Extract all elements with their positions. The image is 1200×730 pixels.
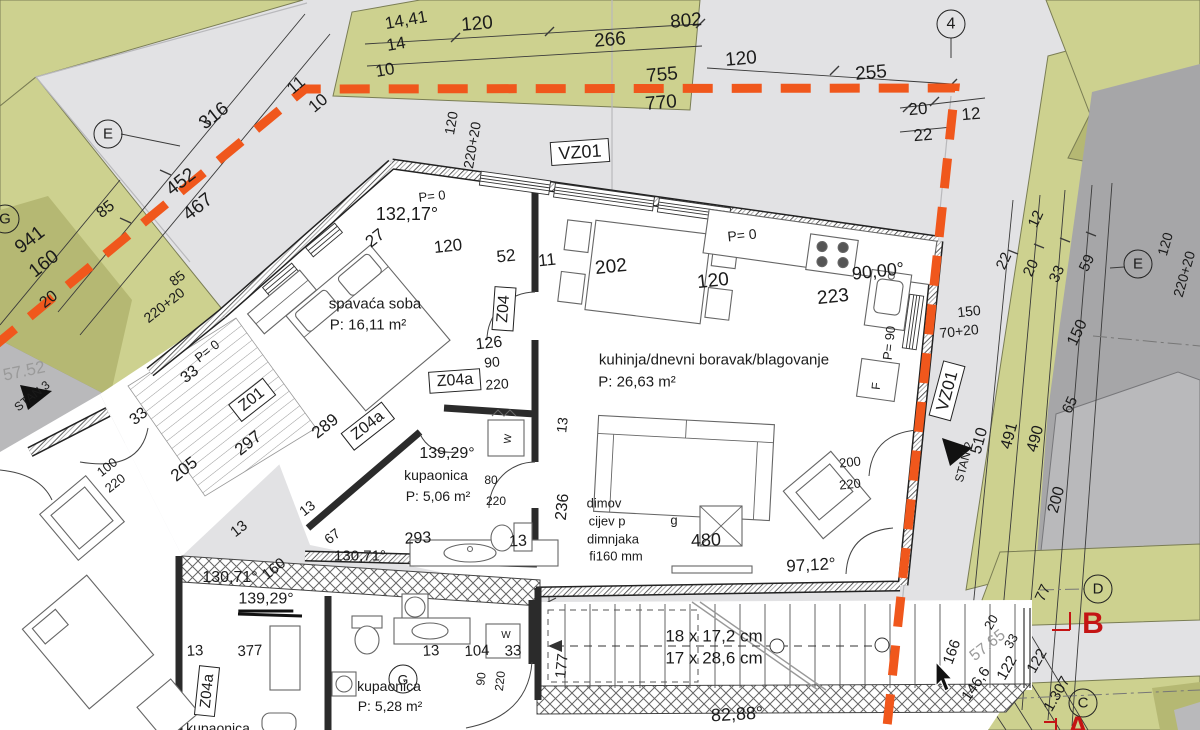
stove [806,234,859,276]
sink [864,269,911,330]
floor-plan: 14,4114101011120266802755770120255201222… [0,0,1200,730]
underline-139 [238,614,302,616]
plan-drawing [0,0,1200,730]
shelf [672,566,752,573]
green-parcel-top [333,0,700,110]
hall-cabinet [270,626,300,690]
hall-rug [262,713,296,730]
coffee-table [700,506,742,546]
wall-zone-b [537,684,1030,714]
fridge [857,359,900,402]
sofa [594,415,775,520]
